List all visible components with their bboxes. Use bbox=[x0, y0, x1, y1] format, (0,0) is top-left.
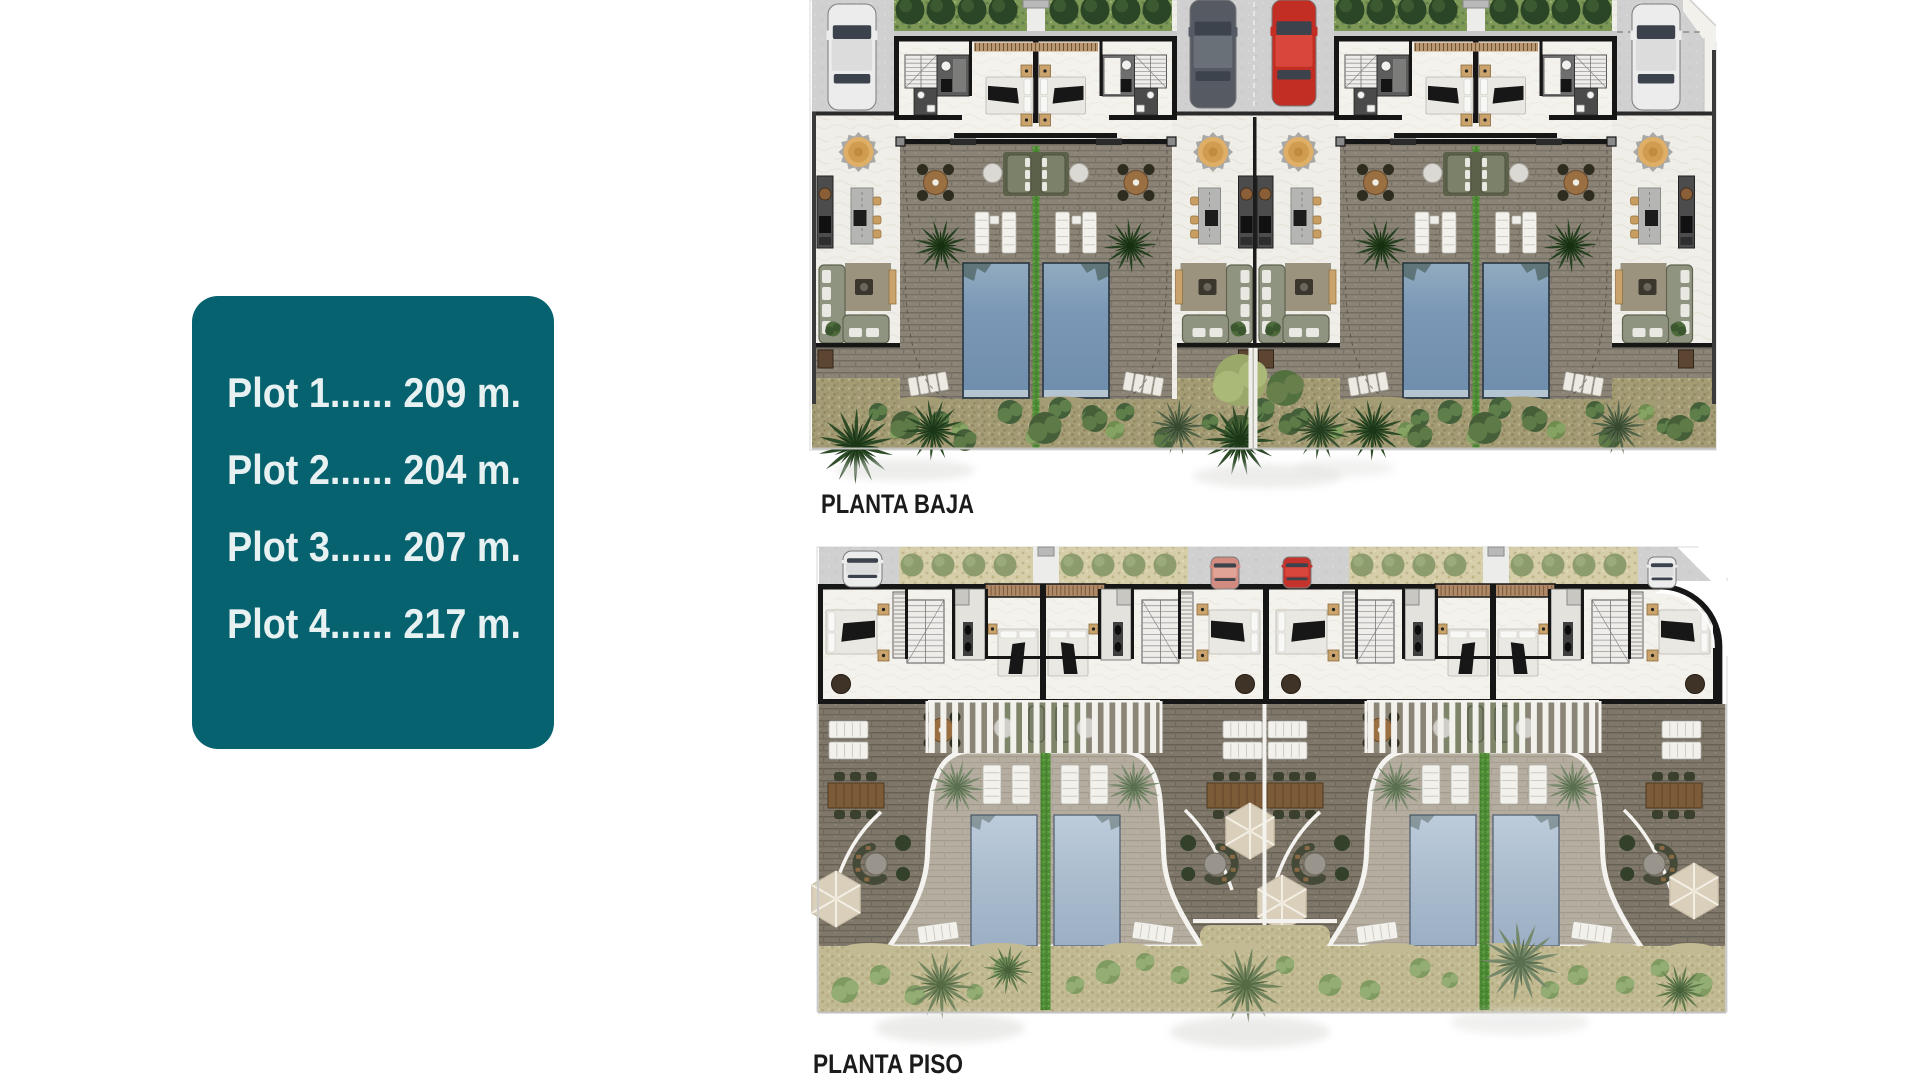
svg-text:Plot 2...... 204 m.: Plot 2...... 204 m. bbox=[227, 446, 521, 493]
svg-text:PLANTA PISO: PLANTA PISO bbox=[813, 1049, 963, 1079]
svg-text:Plot 3...... 207 m.: Plot 3...... 207 m. bbox=[227, 523, 521, 570]
svg-text:Plot 4...... 217 m.: Plot 4...... 217 m. bbox=[227, 600, 521, 647]
svg-text:PLANTA BAJA: PLANTA BAJA bbox=[821, 489, 974, 519]
svg-text:Plot 1...... 209 m.: Plot 1...... 209 m. bbox=[227, 369, 521, 416]
